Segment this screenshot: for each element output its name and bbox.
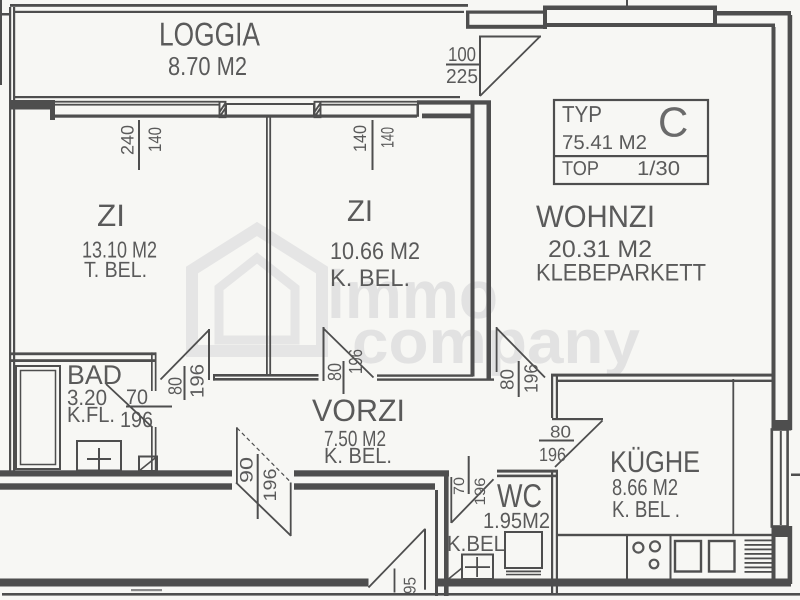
svg-text:100: 100 xyxy=(448,44,476,66)
svg-text:TOP: TOP xyxy=(562,158,599,180)
svg-text:LOGGIA: LOGGIA xyxy=(159,16,260,53)
svg-text:K. BEL.: K. BEL. xyxy=(330,265,410,292)
svg-text:75.41 M2: 75.41 M2 xyxy=(562,132,647,154)
svg-text:80: 80 xyxy=(498,369,519,390)
svg-text:196: 196 xyxy=(539,445,566,466)
svg-text:196: 196 xyxy=(260,469,280,502)
svg-text:196: 196 xyxy=(346,349,367,374)
svg-text:8.70 M2: 8.70 M2 xyxy=(168,51,247,81)
svg-text:K. BEL .: K. BEL . xyxy=(612,496,680,522)
svg-text:C: C xyxy=(658,99,688,146)
svg-text:196: 196 xyxy=(472,478,489,506)
svg-text:1/30: 1/30 xyxy=(637,158,680,180)
svg-text:WOHNZI: WOHNZI xyxy=(536,199,655,234)
svg-text:TYP: TYP xyxy=(562,101,602,127)
svg-text:80: 80 xyxy=(550,423,571,442)
svg-text:196: 196 xyxy=(188,364,209,398)
svg-text:140: 140 xyxy=(378,127,398,148)
svg-text:ZI: ZI xyxy=(347,195,373,228)
svg-text:140: 140 xyxy=(350,125,370,152)
svg-text:225: 225 xyxy=(446,66,478,88)
svg-text:240: 240 xyxy=(118,125,138,155)
svg-text:VORZI: VORZI xyxy=(312,393,405,428)
svg-text:196: 196 xyxy=(522,364,543,393)
svg-text:1.95M2: 1.95M2 xyxy=(483,508,550,533)
svg-text:140: 140 xyxy=(145,127,165,152)
svg-text:90: 90 xyxy=(237,457,257,483)
svg-text:70: 70 xyxy=(451,477,468,495)
svg-text:196: 196 xyxy=(120,407,153,432)
svg-text:KLEBEPARKETT: KLEBEPARKETT xyxy=(536,260,706,287)
svg-text:80: 80 xyxy=(166,377,187,395)
svg-text:95: 95 xyxy=(401,577,420,594)
svg-text:K.FL.: K.FL. xyxy=(67,402,115,427)
svg-text:K.BEL: K.BEL xyxy=(447,531,505,556)
svg-text:T. BEL.: T. BEL. xyxy=(84,257,147,282)
svg-text:ZI: ZI xyxy=(97,198,125,233)
svg-text:10.66 M2: 10.66 M2 xyxy=(330,238,420,265)
svg-text:K. BEL.: K. BEL. xyxy=(324,443,392,468)
